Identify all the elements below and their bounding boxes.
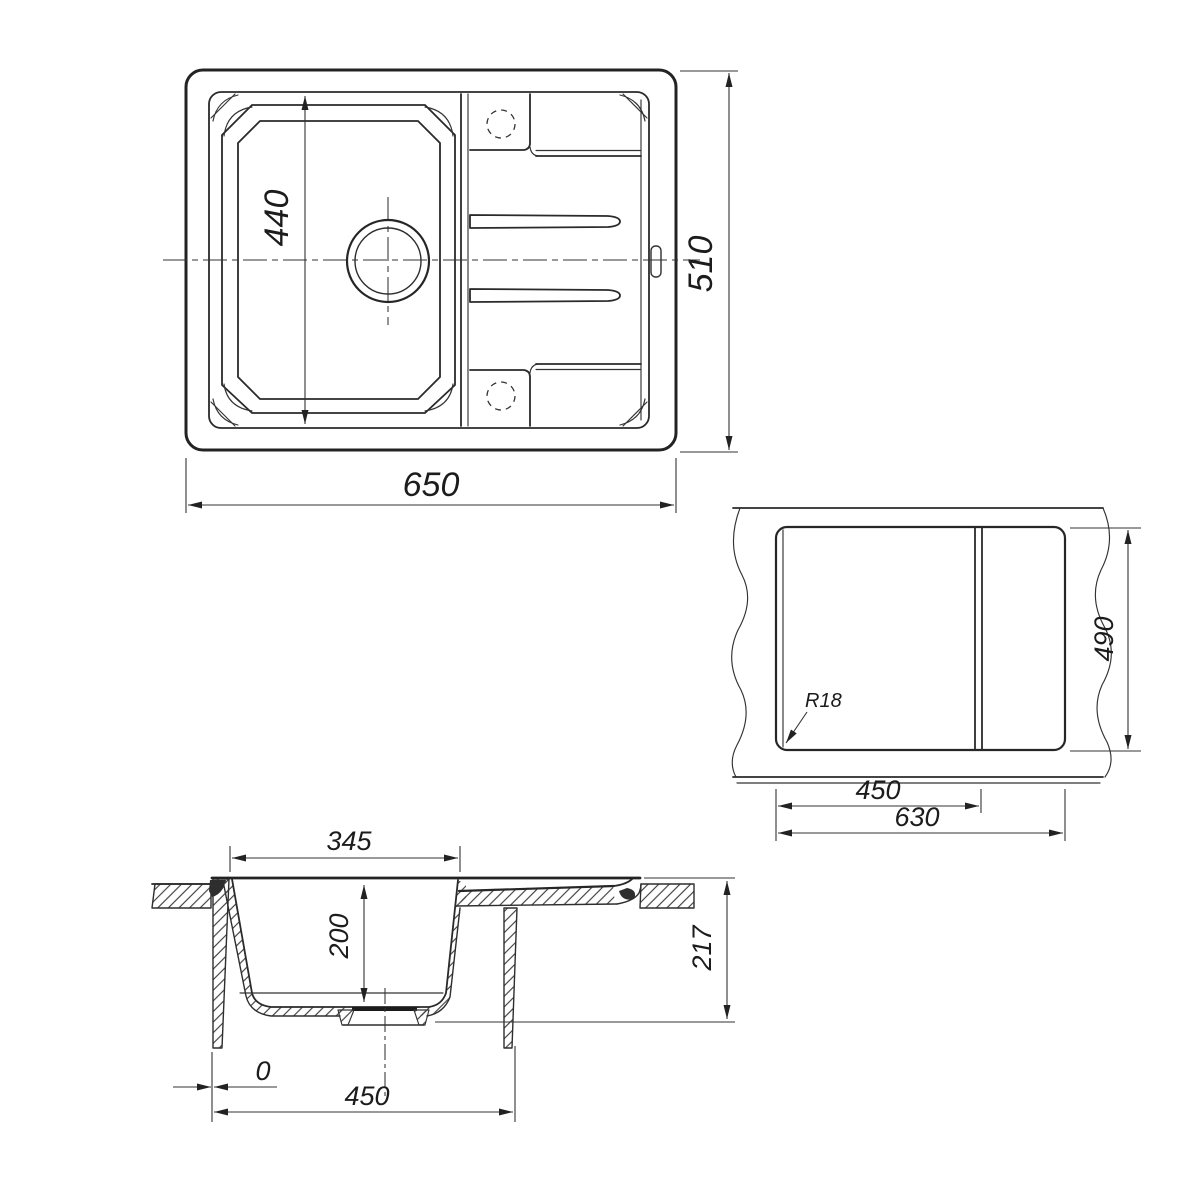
section-view: 345 200 217 0 450: [152, 826, 735, 1122]
countertop-left-hatch: [152, 884, 211, 908]
drain-groove-2: [470, 289, 620, 302]
dim-200: 200: [324, 885, 364, 1002]
dim-450-cutout: 450: [776, 775, 981, 841]
dim-label-345: 345: [326, 826, 372, 856]
dim-0: 0: [173, 1056, 277, 1087]
tap-pocket-bottom: [470, 370, 530, 426]
dim-label-0: 0: [255, 1056, 270, 1086]
dim-label-450-section: 450: [344, 1081, 389, 1111]
dim-label-630: 630: [894, 802, 939, 832]
dim-label-490: 490: [1089, 616, 1119, 661]
basin-bevel-corner-arcs: [224, 107, 453, 411]
dim-345: 345: [230, 826, 460, 872]
dim-label-440: 440: [258, 190, 296, 247]
dim-510: 510: [680, 71, 738, 452]
sink-wall-left-hatch: [213, 879, 229, 1048]
countertop-break-left: [732, 508, 748, 777]
drain-groove-1: [470, 215, 620, 228]
basin-bevel-outer: [222, 105, 455, 413]
sink-dimension-drawing: 440 510 650 R18: [0, 0, 1200, 1200]
tap-pocket-bottom-step: [530, 364, 538, 373]
top-view: 440 510 650: [163, 70, 738, 513]
tap-pocket-top-step: [530, 147, 538, 156]
countertop-right-hatch: [640, 884, 694, 908]
sealant-bead: [619, 888, 635, 900]
dim-label-200: 200: [324, 913, 354, 959]
dim-650: 650: [186, 458, 676, 513]
cutout-outline: [776, 527, 1065, 750]
dim-label-450-cutout: 450: [855, 775, 900, 805]
dim-label-510: 510: [682, 236, 720, 293]
dim-label-650: 650: [403, 466, 460, 504]
dim-label-217: 217: [687, 924, 717, 971]
tap-hole-top: [487, 110, 515, 138]
tap-hole-bottom: [487, 382, 515, 410]
dim-630: 630: [778, 789, 1065, 841]
dim-label-r18: R18: [805, 690, 842, 712]
tap-pocket-top: [470, 94, 530, 150]
technical-drawing-page: 440 510 650 R18: [0, 0, 1200, 1200]
overflow-slot: [651, 246, 661, 277]
cutout-view: R18 490 450 630: [732, 508, 1141, 841]
dim-r18: R18: [786, 690, 842, 743]
